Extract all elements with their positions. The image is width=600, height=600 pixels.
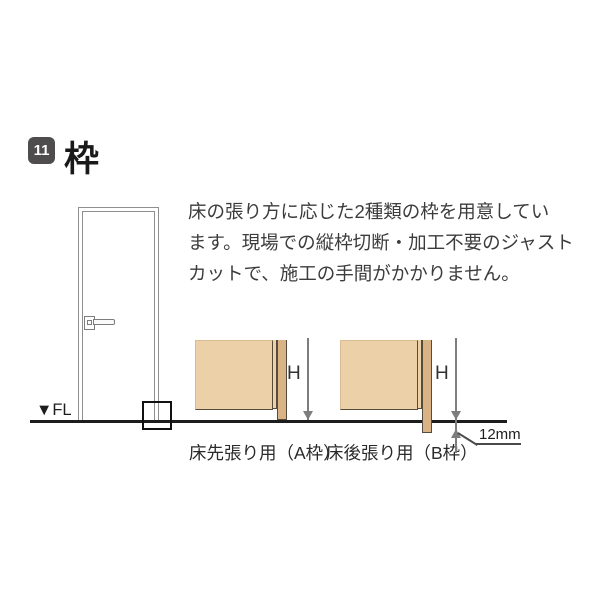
section-number: 11 <box>34 142 50 159</box>
catalog-page: 11 枠 床の張り方に応じた2種類の枠を用意してい ます。現場での縦枠切断・加工… <box>0 0 600 600</box>
intro-line-3: カットで、施工の手間がかかりません。 <box>188 258 588 289</box>
diagram-a-dimension-line <box>307 338 309 420</box>
intro-paragraph: 床の張り方に応じた2種類の枠を用意してい ます。現場での縦枠切断・加工不要のジャ… <box>188 196 588 289</box>
door-handle-lever-icon <box>93 319 115 325</box>
intro-line-2: ます。現場での縦枠切断・加工不要のジャスト <box>188 227 588 258</box>
intro-line-1: 床の張り方に応じた2種類の枠を用意してい <box>188 196 588 227</box>
diagram-a-height-label: H <box>287 363 301 385</box>
frame-bottom-highlight-box <box>142 401 172 430</box>
door-frame-illustration <box>78 207 159 423</box>
floor-level-marker: ▼FL <box>36 401 72 420</box>
door-handle-pin <box>87 320 92 325</box>
offset-leader-underline <box>476 443 521 445</box>
offset-dimension-label: 12mm <box>479 426 521 443</box>
diagram-a-caption: 床先張り用（A枠） <box>189 440 341 465</box>
diagram-a-frame-jamb <box>277 340 287 420</box>
diagram-a-wall-section <box>195 340 273 410</box>
floor-line <box>30 420 507 423</box>
diagram-b-wall-section <box>340 340 418 410</box>
diagram-b-frame-jamb <box>422 340 432 433</box>
diagram-b-height-label: H <box>435 363 449 385</box>
diagram-b-arrow-down-icon <box>451 411 461 420</box>
section-number-badge: 11 <box>28 137 55 164</box>
page-title: 枠 <box>64 131 100 182</box>
diagram-a-arrow-down-icon <box>303 411 313 420</box>
